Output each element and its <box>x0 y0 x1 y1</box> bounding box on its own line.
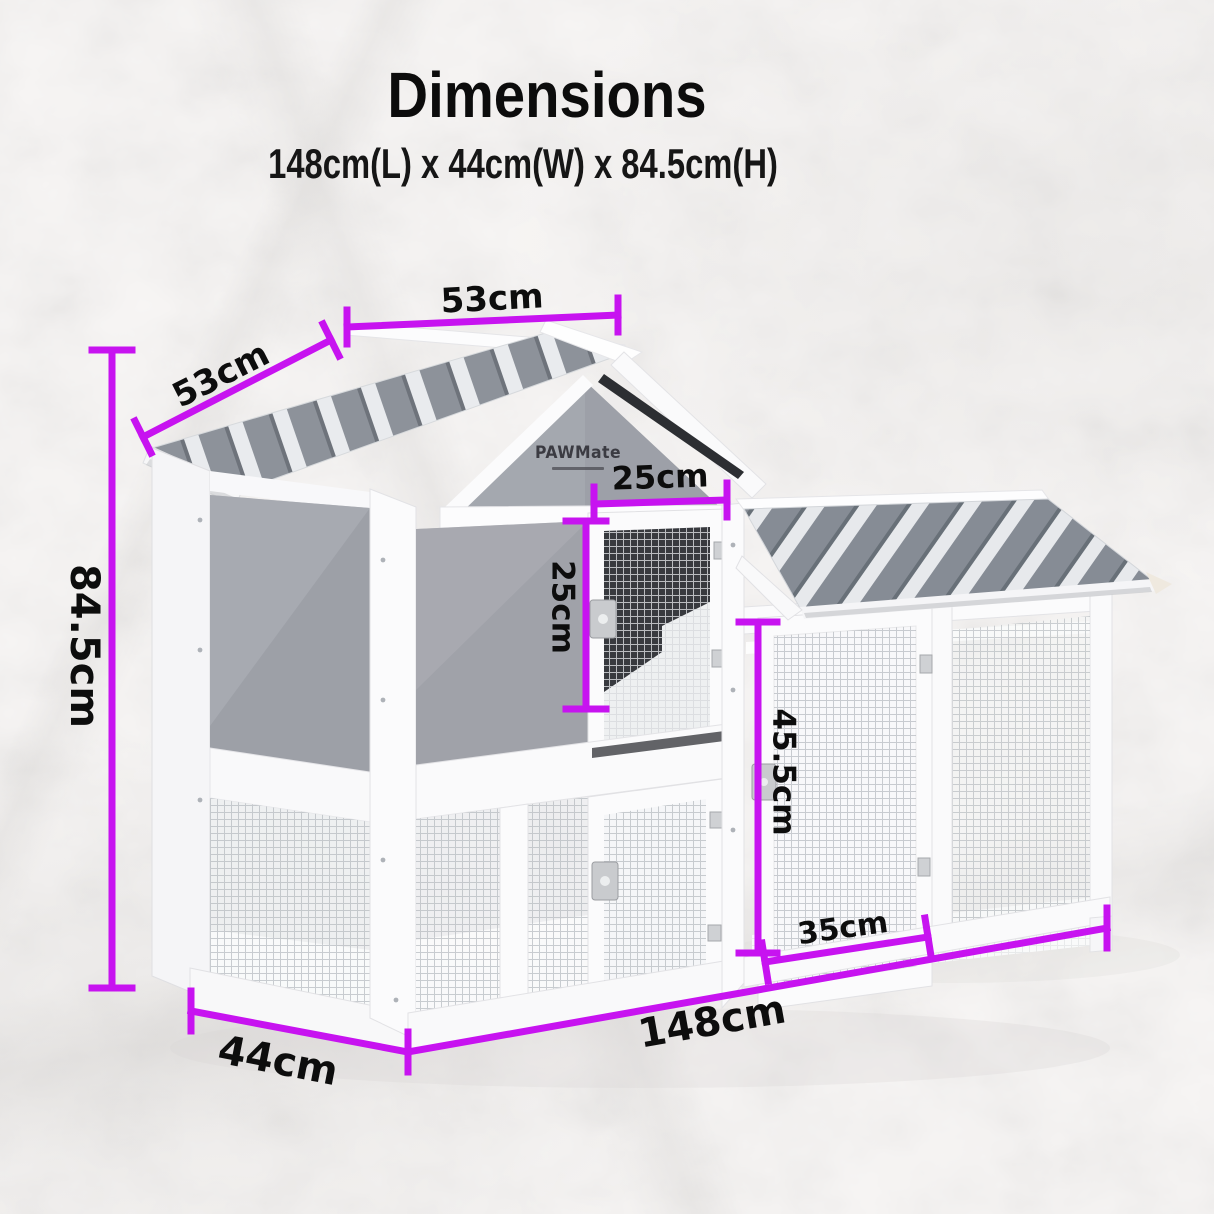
run-door-hinge-top <box>920 655 932 673</box>
hutch-door-latch <box>590 600 616 638</box>
dim-label-hutch-door-width: 25cm <box>611 459 709 494</box>
brand-logo: PAWMate <box>535 443 621 463</box>
lower-door-hinge-bottom <box>708 925 721 941</box>
brand-tagline-bar <box>552 467 604 470</box>
hutch-section <box>143 320 766 1053</box>
lower-door-hinge-top <box>710 812 723 828</box>
front-right-post <box>722 503 744 1008</box>
run-mid-post <box>932 602 952 944</box>
product-dimensions-image: Dimensions 148cm(L) x 44cm(W) x 84.5cm(H… <box>0 0 1214 1214</box>
dim-label-roof-width: 53cm <box>440 279 545 318</box>
hutch-illustration <box>0 0 1214 1214</box>
dim-label-hutch-door-height: 25cm <box>547 560 578 654</box>
front-left-post <box>370 489 416 1040</box>
lower-mid-stud <box>500 804 528 1001</box>
run-right-mesh-panel <box>952 616 1090 940</box>
lower-door-latch <box>592 862 618 900</box>
dim-label-total-height: 84.5cm <box>64 564 104 728</box>
dim-label-run-door-height: 45.5cm <box>768 708 799 835</box>
back-left-post <box>152 448 210 1000</box>
run-right-post <box>1090 594 1112 928</box>
run-door-hinge-bottom <box>918 858 930 876</box>
